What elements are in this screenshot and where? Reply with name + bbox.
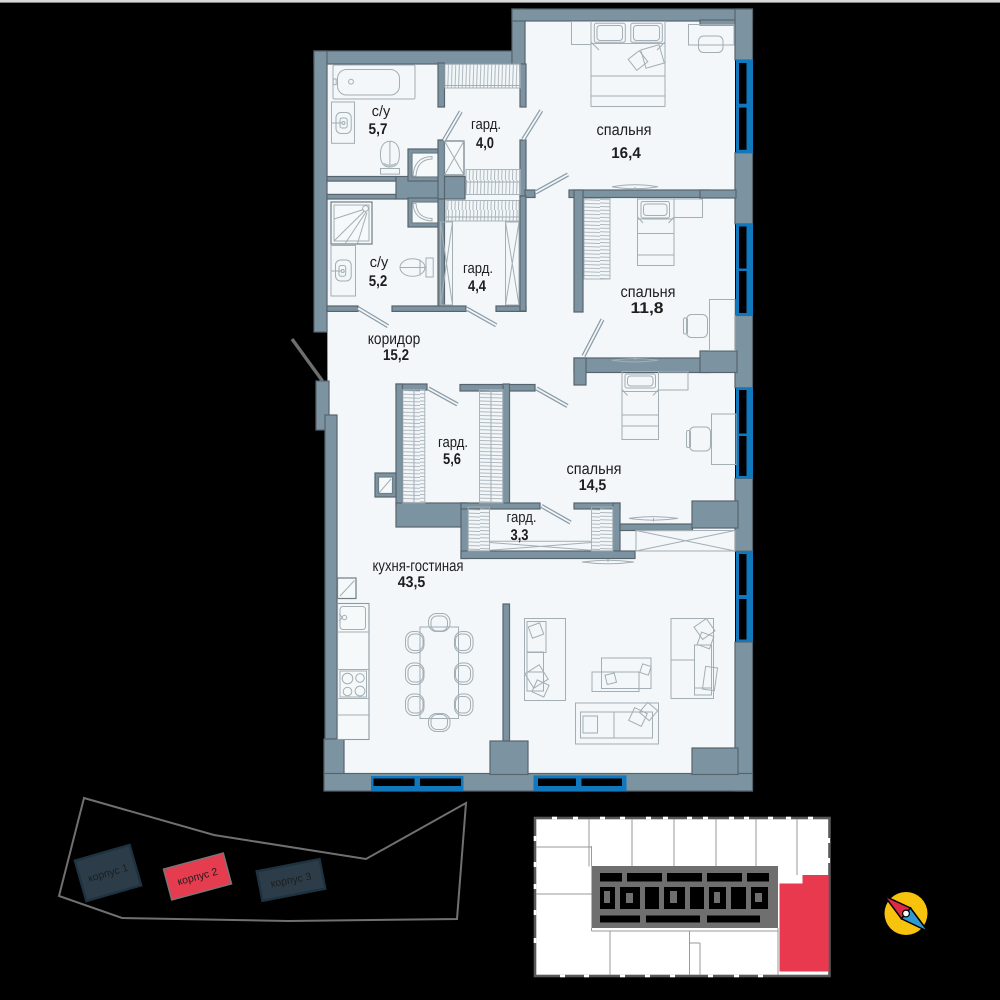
svg-text:спальня: спальня [597,122,652,139]
svg-text:3,3: 3,3 [511,527,529,544]
svg-text:14,5: 14,5 [579,477,607,494]
svg-text:4,0: 4,0 [476,135,494,152]
svg-text:15,2: 15,2 [383,347,409,364]
svg-text:кухня-гостиная: кухня-гостиная [373,558,464,575]
svg-text:5,7: 5,7 [369,121,388,138]
svg-text:с/у: с/у [372,103,391,120]
svg-text:спальня: спальня [621,284,676,301]
svg-text:с/у: с/у [370,254,389,271]
svg-text:43,5: 43,5 [398,574,426,591]
svg-text:гард.: гард. [463,260,493,277]
svg-text:5,6: 5,6 [443,451,461,468]
svg-text:спальня: спальня [567,461,622,478]
svg-text:гард.: гард. [438,434,468,451]
svg-text:4,4: 4,4 [468,278,486,295]
svg-text:гард.: гард. [471,116,501,133]
svg-text:гард.: гард. [507,509,537,526]
svg-text:коридор: коридор [368,331,421,348]
svg-text:16,4: 16,4 [611,145,641,162]
svg-text:5,2: 5,2 [369,273,388,290]
svg-text:11,8: 11,8 [631,300,664,317]
